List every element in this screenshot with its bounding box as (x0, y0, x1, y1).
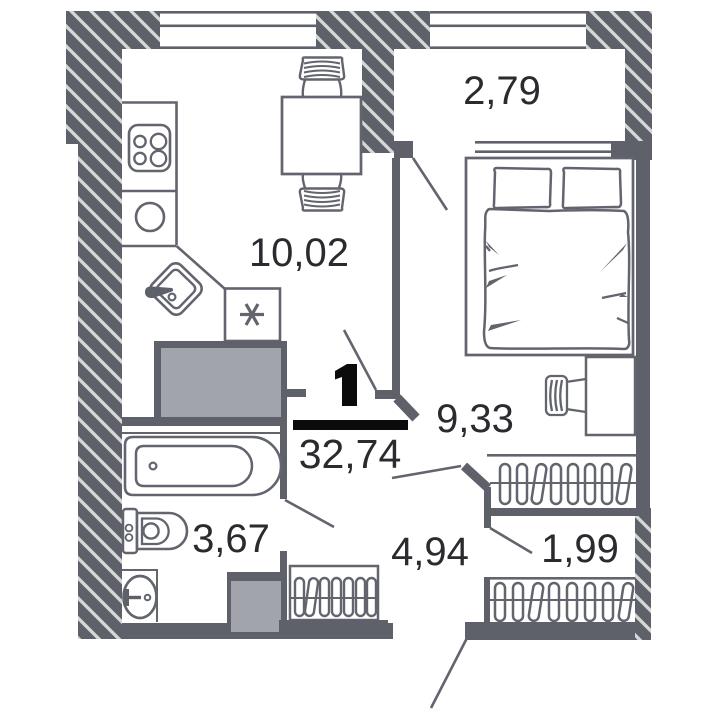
svg-text:10,02: 10,02 (249, 231, 349, 275)
svg-text:1,99: 1,99 (541, 527, 619, 571)
svg-text:32,74: 32,74 (299, 431, 402, 477)
svg-text:2,79: 2,79 (463, 69, 541, 113)
svg-text:9,33: 9,33 (436, 397, 514, 441)
svg-text:4,94: 4,94 (391, 530, 469, 574)
svg-text:3,67: 3,67 (192, 517, 270, 561)
